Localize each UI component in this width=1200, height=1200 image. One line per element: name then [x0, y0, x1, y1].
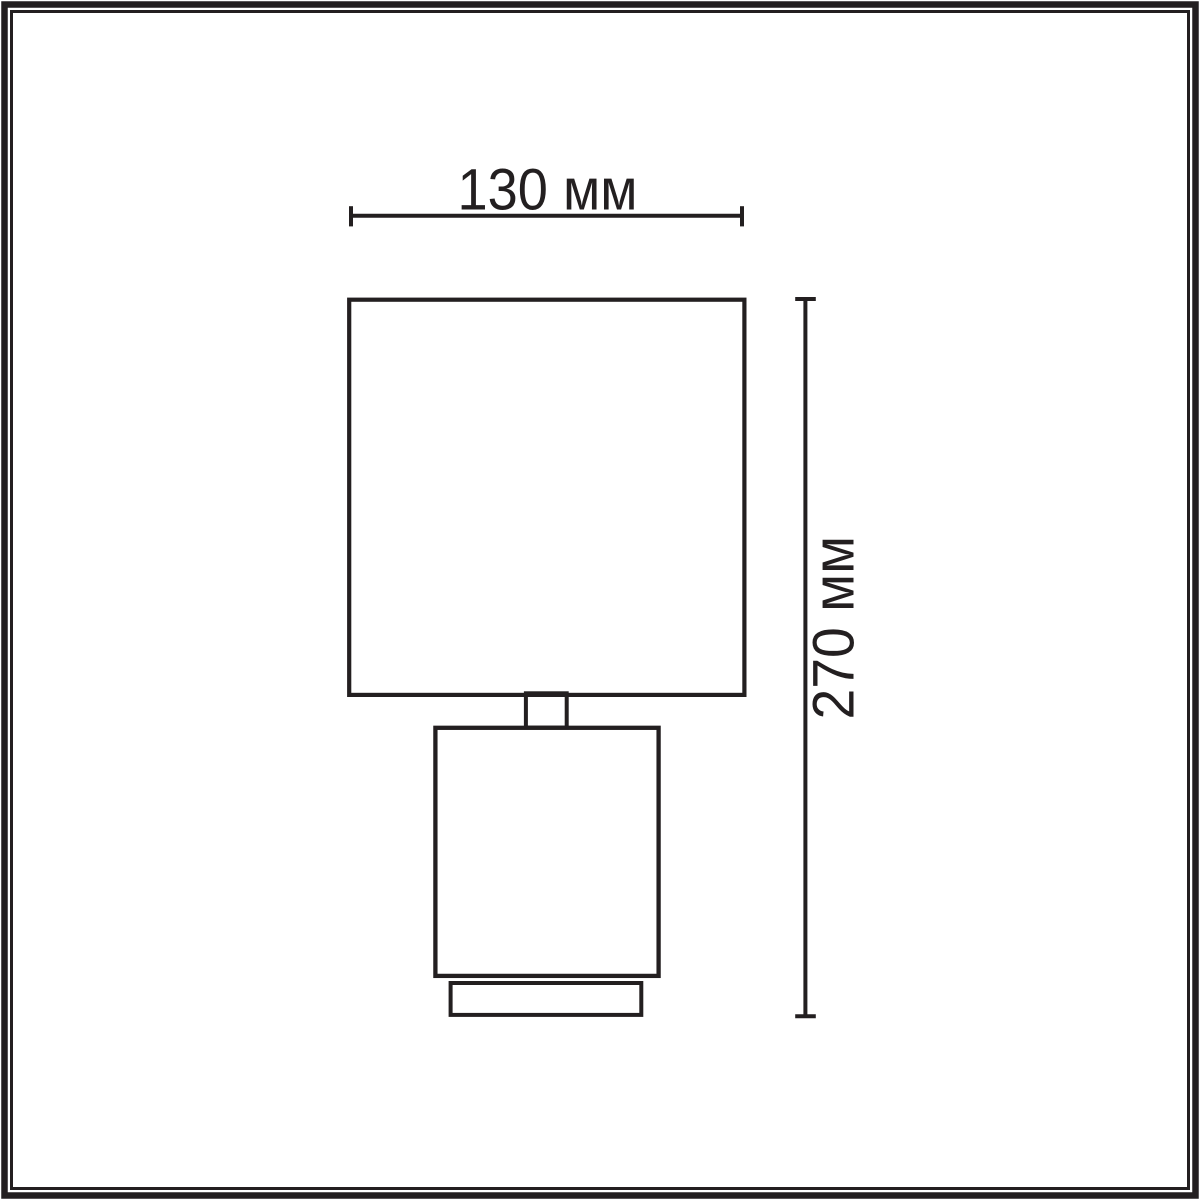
svg-text:130 мм: 130 мм [458, 158, 638, 223]
svg-text:270 мм: 270 мм [802, 536, 867, 720]
